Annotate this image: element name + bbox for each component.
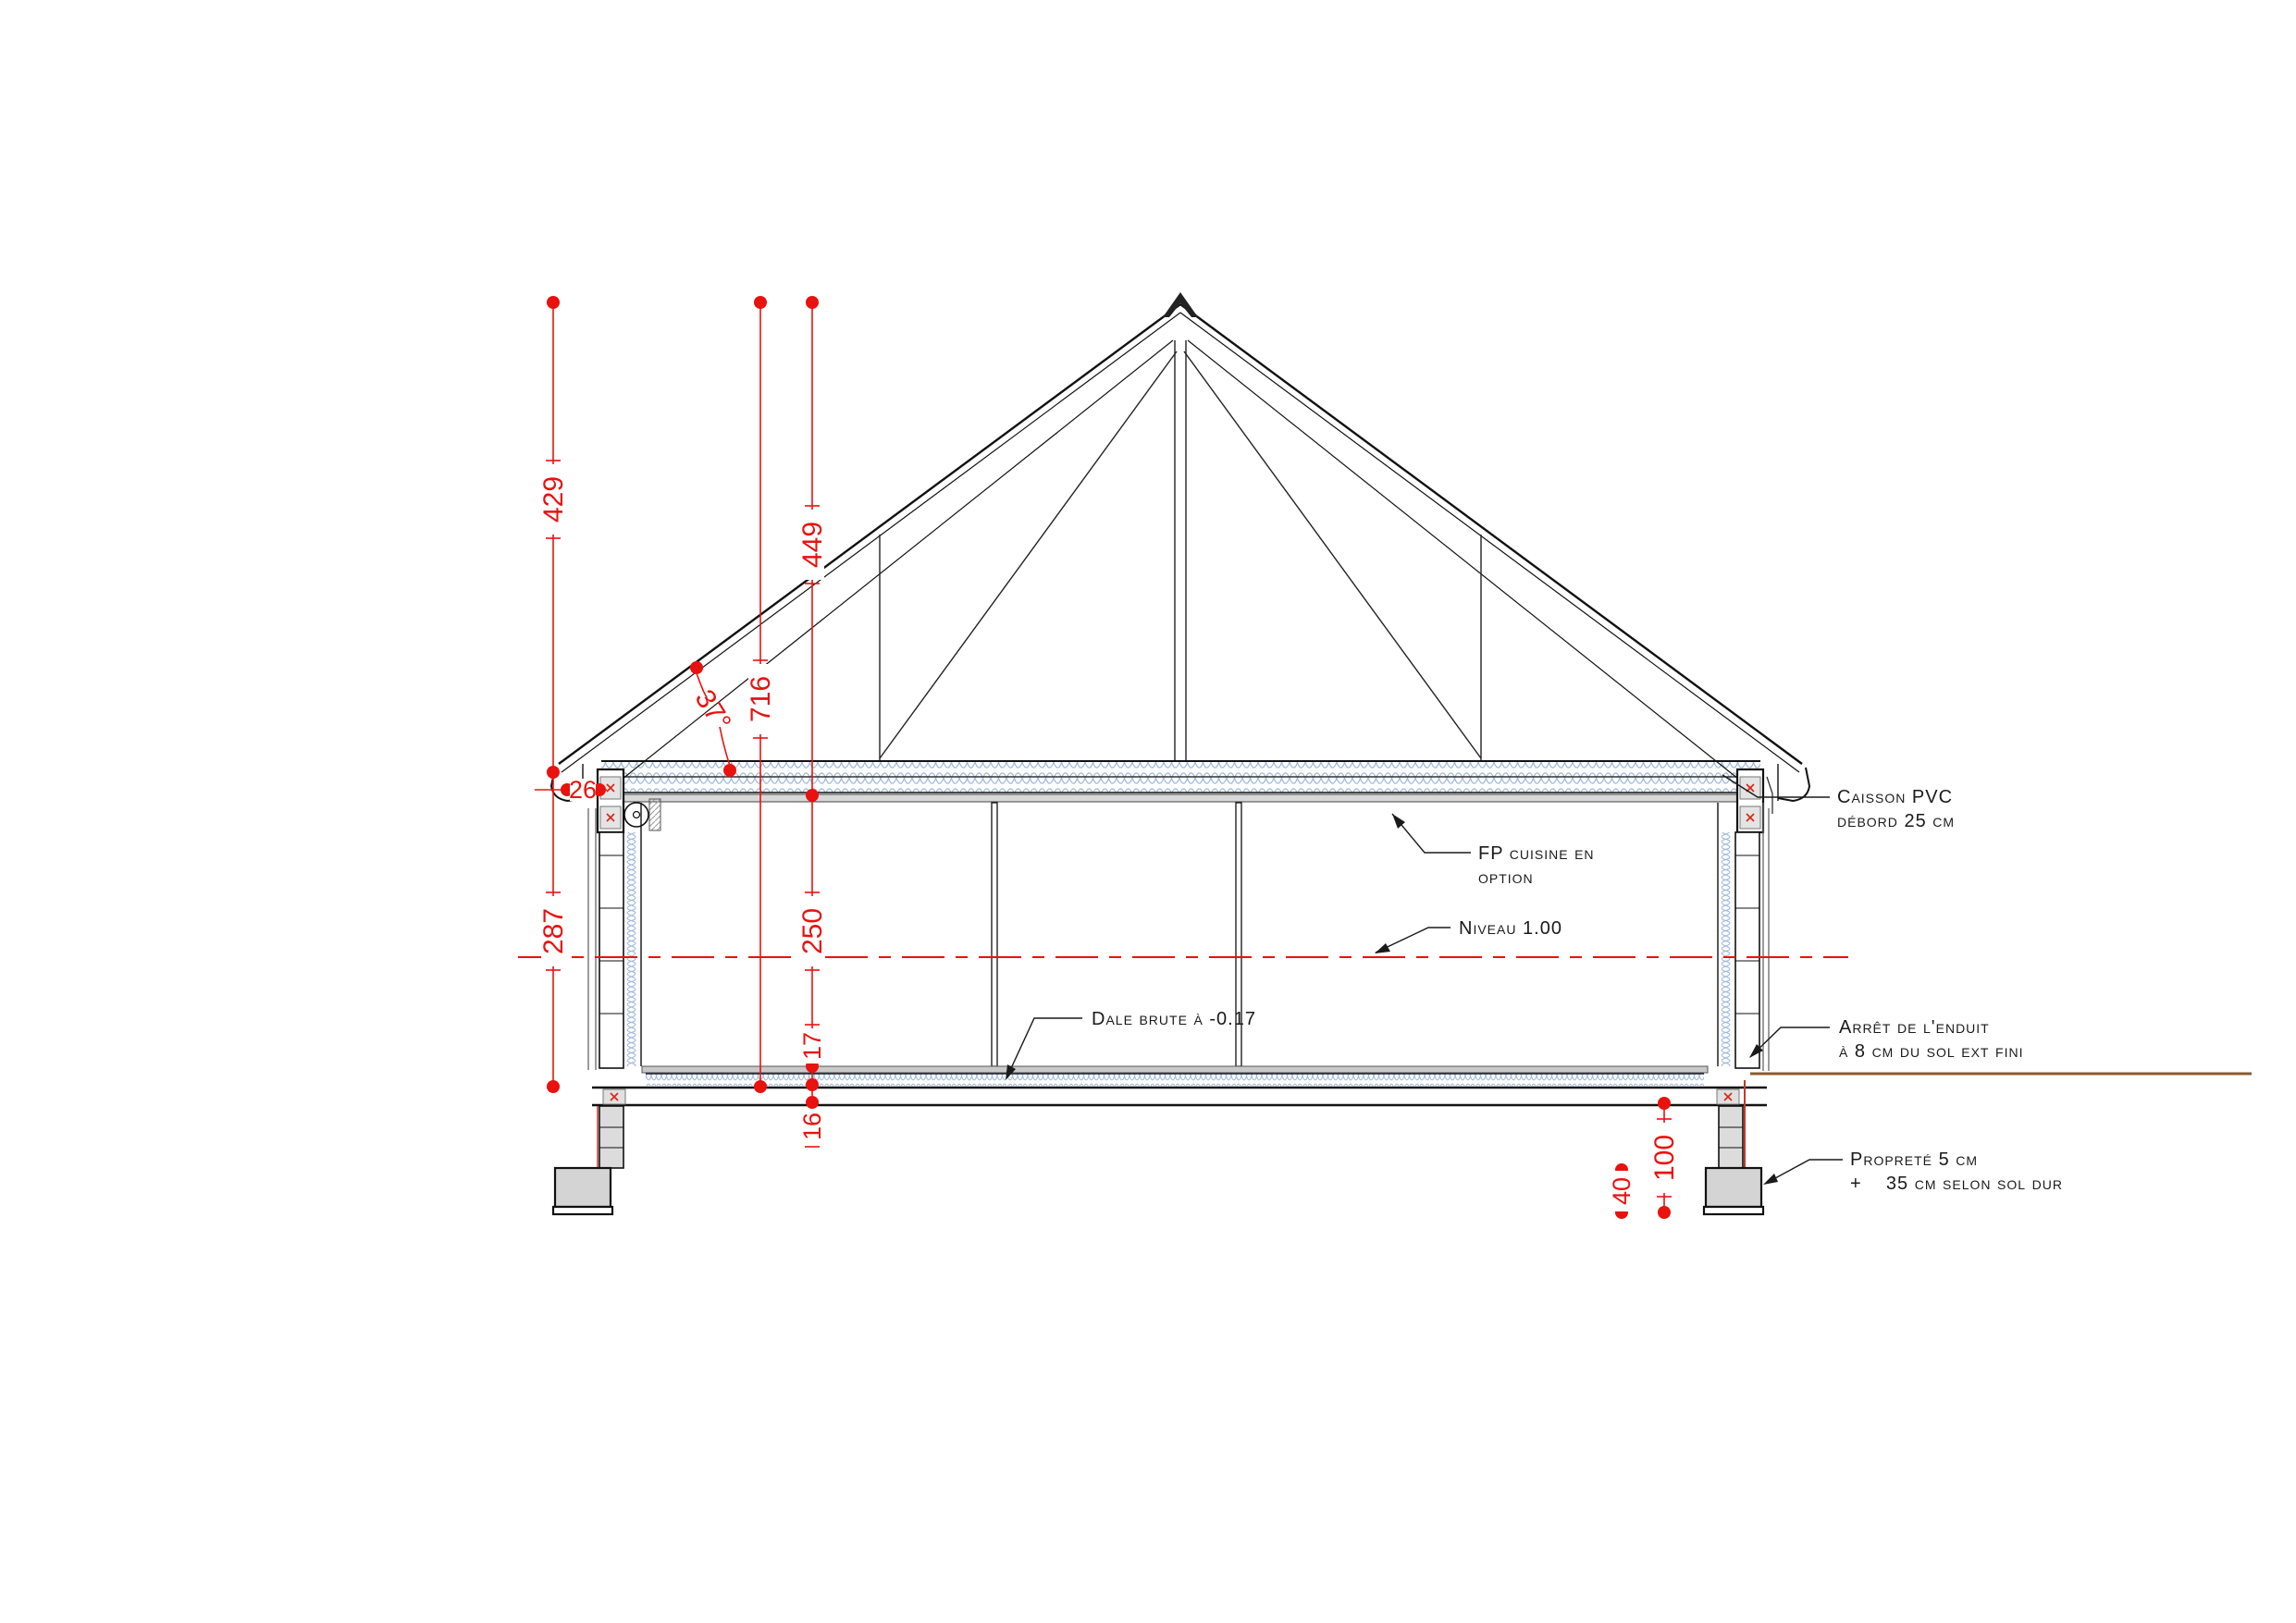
dim-250: 250	[797, 908, 828, 954]
dim-100: 100	[1649, 1135, 1680, 1181]
dim-449: 449	[797, 522, 828, 568]
note-fp-2: option	[1478, 867, 1534, 888]
right-footing	[1706, 1168, 1761, 1207]
dim-17: 17	[798, 1032, 826, 1060]
ceiling-insulation	[601, 761, 1760, 802]
x-marks	[607, 784, 1754, 1100]
left-wall	[588, 803, 641, 1070]
note-fp-1: FP cuisine en	[1478, 843, 1595, 864]
architectural-section-sheet: 429 287 716 449 250 17 16 100 40 26 37° …	[0, 0, 2296, 1623]
dim-287: 287	[538, 908, 569, 954]
left-footing	[555, 1168, 611, 1207]
note-proprete-1: Propreté 5 cm	[1850, 1150, 1978, 1170]
right-wall	[1718, 803, 1769, 1071]
dim-16: 16	[798, 1113, 826, 1140]
roller-shutter	[624, 803, 648, 827]
dim-26: 26	[569, 776, 597, 804]
dim-40: 40	[1608, 1177, 1636, 1205]
dim-angle: 37°	[689, 684, 737, 736]
dimension-ticks	[546, 461, 1672, 1197]
dim-429: 429	[538, 476, 569, 523]
foundations	[553, 1106, 1763, 1214]
note-caisson-1: Caisson PVC	[1837, 787, 1953, 807]
label-masks	[541, 464, 1676, 1211]
note-caisson-2: débord 25 cm	[1837, 811, 1955, 831]
note-niveau: Niveau 1.00	[1459, 918, 1562, 939]
note-enduit-2: à 8 cm du sol ext fini	[1839, 1041, 2023, 1062]
note-proprete-2: + 35 cm selon sol dur	[1850, 1174, 2063, 1194]
right-eave-detail	[1737, 764, 1809, 832]
roof-truss	[880, 340, 1481, 760]
dim-716: 716	[746, 676, 776, 722]
section-drawing: 429 287 716 449 250 17 16 100 40 26 37° …	[0, 0, 2296, 1623]
floor-slab	[592, 1066, 1767, 1105]
note-enduit-1: Arrêt de l'enduit	[1839, 1017, 1990, 1038]
note-dale: Dale brute à -0.17	[1092, 1009, 1256, 1029]
